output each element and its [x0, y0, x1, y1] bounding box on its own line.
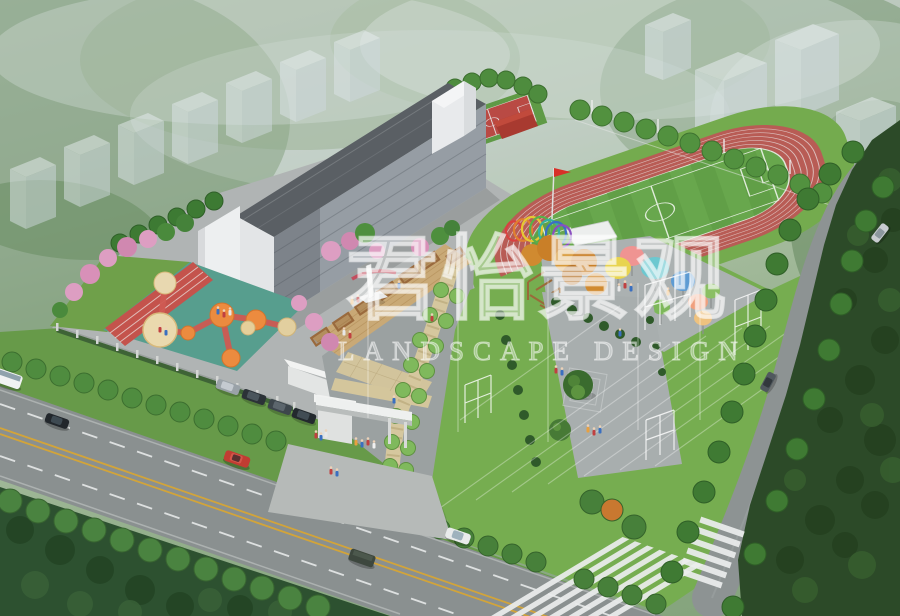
rendering-canvas: 君怡景观 LANDSCAPE DESIGN: [0, 0, 900, 616]
scene: [0, 0, 900, 616]
